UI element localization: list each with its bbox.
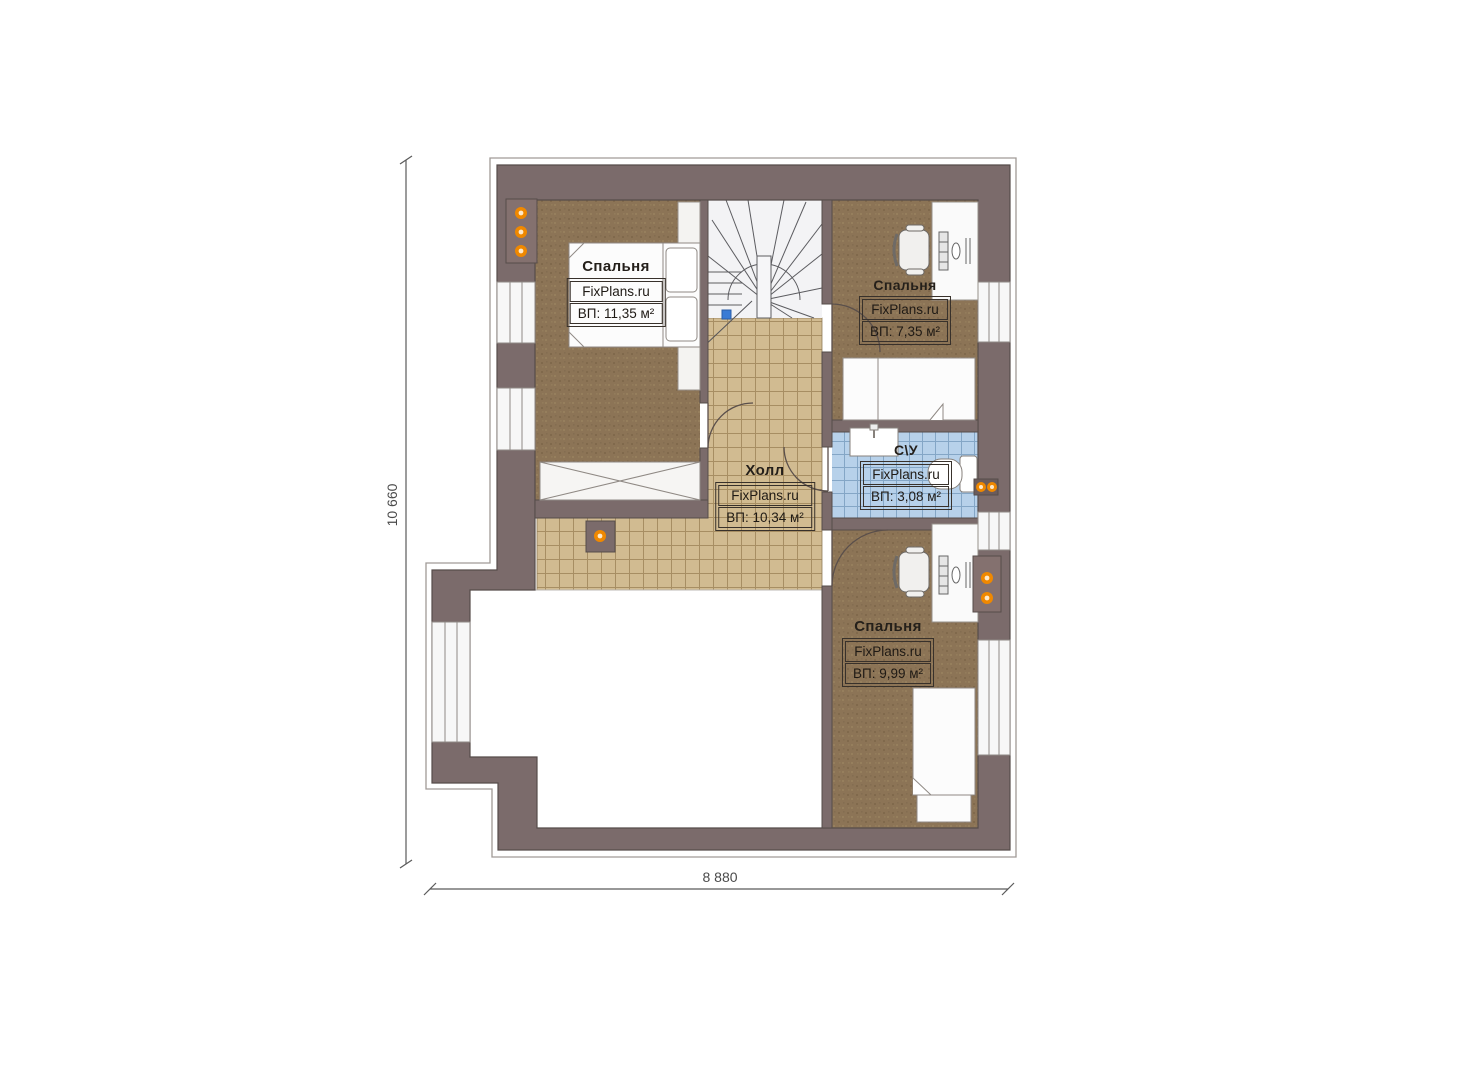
room-area-label: ВП: 11,35 м²	[570, 303, 663, 324]
room-name: Спальня	[842, 618, 934, 635]
window	[432, 622, 470, 742]
window	[978, 640, 1010, 755]
room-name: Спальня	[859, 277, 951, 293]
partition-wall	[822, 352, 832, 447]
window	[978, 282, 1010, 342]
brand-label: FixPlans.ru	[718, 485, 812, 506]
brand-label: FixPlans.ru	[862, 299, 948, 320]
window	[497, 388, 535, 450]
partition-wall	[700, 200, 708, 403]
floor-plan-drawing	[0, 0, 1474, 1080]
vertical-dimension-line	[400, 156, 412, 868]
room-info-box: FixPlans.ru ВП: 9,99 м²	[842, 638, 934, 687]
window	[978, 512, 1010, 550]
room-label-bedroom-1: Спальня FixPlans.ru ВП: 11,35 м²	[567, 258, 666, 327]
room-area-label: ВП: 3,08 м²	[863, 486, 949, 507]
room-area-label: ВП: 7,35 м²	[862, 321, 948, 342]
single-bed	[843, 358, 975, 420]
horizontal-dimension-label: 8 880	[702, 869, 737, 885]
room-name: Холл	[715, 462, 815, 479]
room-area-label: ВП: 9,99 м²	[845, 663, 931, 684]
room-label-bedroom-3: Спальня FixPlans.ru ВП: 9,99 м²	[842, 618, 934, 687]
brand-label: FixPlans.ru	[570, 281, 663, 302]
room-label-hall: Холл FixPlans.ru ВП: 10,34 м²	[715, 462, 815, 531]
floor-plan-canvas: Спальня FixPlans.ru ВП: 11,35 м² Спальня…	[0, 0, 1474, 1080]
light-group-bedroom-3	[973, 556, 1001, 612]
light-group-bathroom	[974, 479, 998, 495]
partition-wall	[822, 586, 832, 828]
room-info-box: FixPlans.ru ВП: 11,35 м²	[567, 278, 666, 327]
brand-label: FixPlans.ru	[863, 464, 949, 485]
room-info-box: FixPlans.ru ВП: 3,08 м²	[860, 461, 952, 510]
brand-label: FixPlans.ru	[845, 641, 931, 662]
room-name: Спальня	[567, 258, 666, 275]
partition-wall	[822, 200, 832, 304]
room-area-label: ВП: 10,34 м²	[718, 507, 812, 528]
single-bed	[913, 688, 975, 822]
room-info-box: FixPlans.ru ВП: 7,35 м²	[859, 296, 951, 345]
window	[497, 282, 535, 343]
room-info-box: FixPlans.ru ВП: 10,34 м²	[715, 482, 815, 531]
vertical-dimension-label: 10 660	[384, 484, 400, 527]
partition-wall	[535, 500, 708, 518]
room-label-bedroom-2: Спальня FixPlans.ru ВП: 7,35 м²	[859, 277, 951, 345]
chimney-light	[594, 530, 606, 542]
room-name: С\У	[860, 442, 952, 458]
light-group-top-left	[506, 199, 537, 263]
wardrobe	[540, 462, 700, 500]
stair-marker	[722, 310, 731, 319]
partition-wall	[822, 492, 832, 530]
room-label-bathroom: С\У FixPlans.ru ВП: 3,08 м²	[860, 442, 952, 510]
